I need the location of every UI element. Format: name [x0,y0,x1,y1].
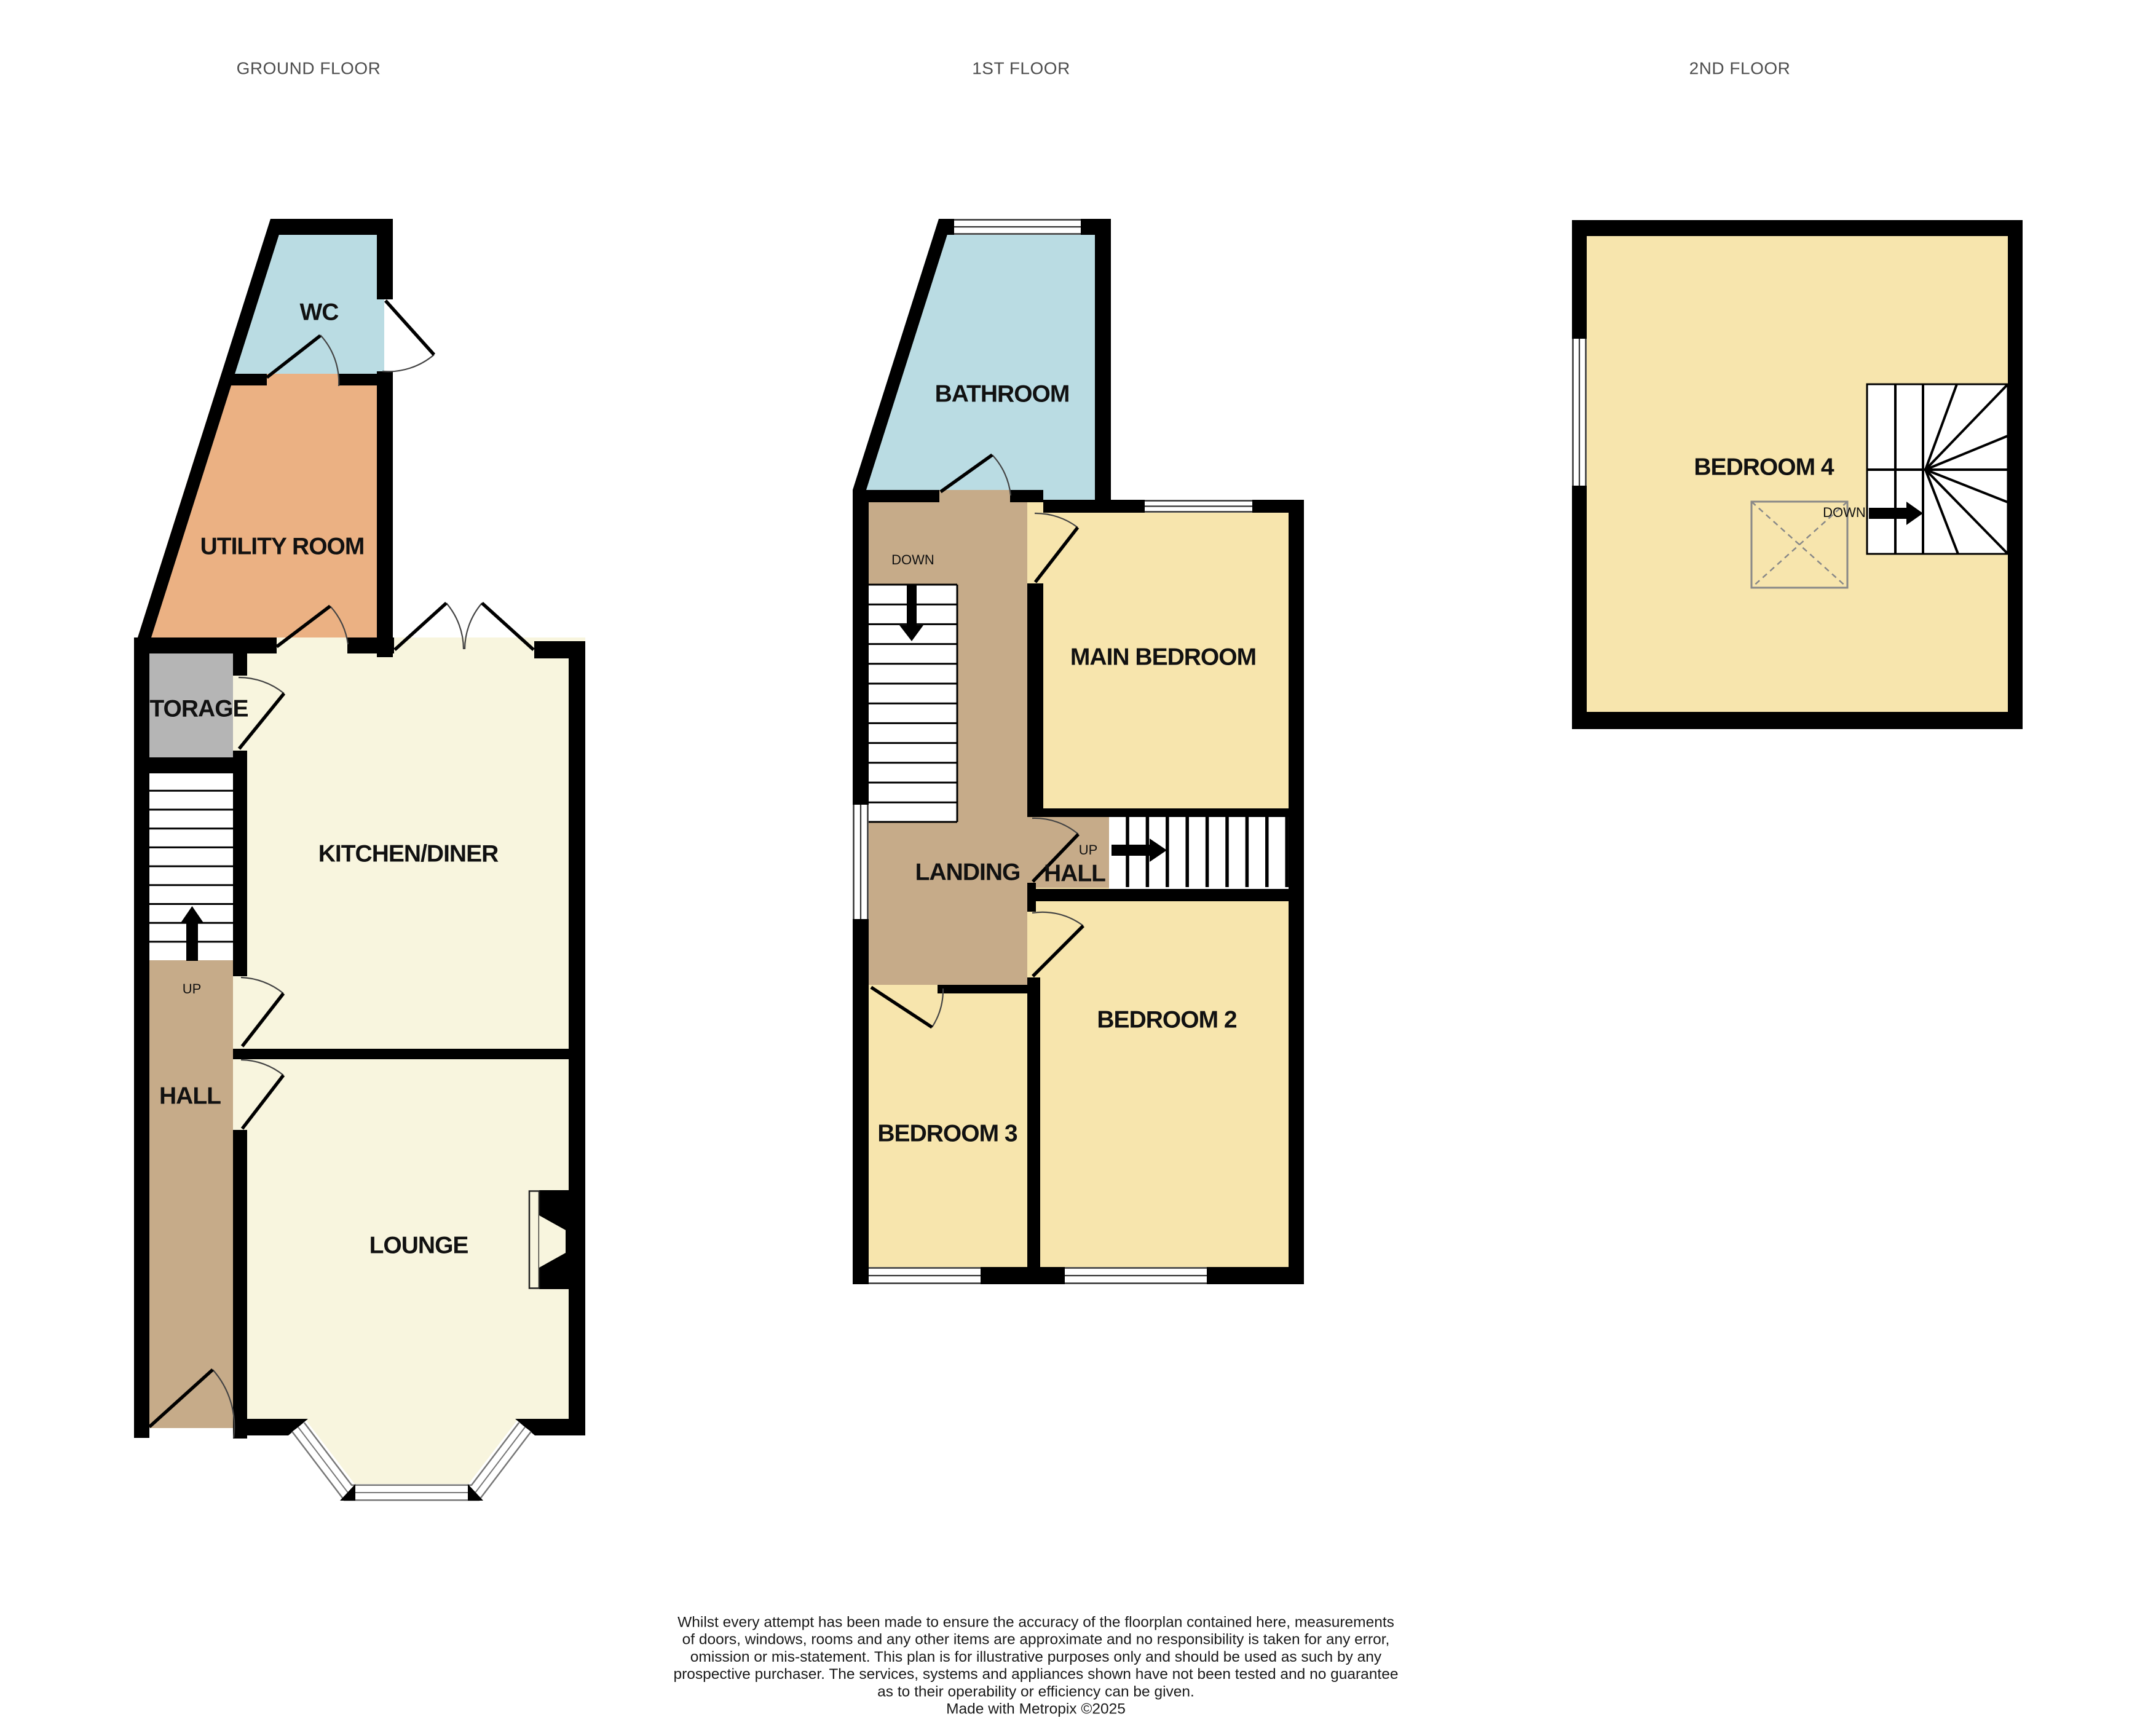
svg-text:1ST FLOOR: 1ST FLOOR [972,58,1070,77]
svg-text:omission or mis-statement. Thi: omission or mis-statement. This plan is … [690,1649,1382,1665]
svg-text:HALL: HALL [159,1083,221,1109]
svg-text:2ND FLOOR: 2ND FLOOR [1689,58,1791,77]
svg-text:WC: WC [300,299,339,325]
svg-text:MAIN BEDROOM: MAIN BEDROOM [1070,644,1256,670]
svg-text:BEDROOM 3: BEDROOM 3 [877,1120,1017,1147]
svg-text:BATHROOM: BATHROOM [935,381,1070,407]
svg-text:LANDING: LANDING [915,859,1021,885]
svg-text:BEDROOM 2: BEDROOM 2 [1097,1006,1237,1033]
svg-text:Whilst every attempt has been: Whilst every attempt has been made to en… [677,1614,1394,1630]
svg-text:UP: UP [1079,842,1098,858]
svg-text:as to their operability or eff: as to their operability or efficiency ca… [877,1683,1194,1700]
svg-text:of doors, windows, rooms and a: of doors, windows, rooms and any other i… [682,1632,1390,1648]
svg-text:LOUNGE: LOUNGE [369,1232,468,1258]
svg-text:DOWN: DOWN [1823,505,1866,520]
svg-text:UTILITY ROOM: UTILITY ROOM [200,533,365,559]
svg-text:Made with Metropix ©2025: Made with Metropix ©2025 [946,1700,1126,1717]
svg-text:KITCHEN/DINER: KITCHEN/DINER [318,840,499,867]
svg-text:prospective purchaser. The ser: prospective purchaser. The services, sys… [673,1666,1398,1683]
svg-text:UP: UP [183,981,202,997]
svg-text:GROUND FLOOR: GROUND FLOOR [237,58,381,77]
svg-text:HALL: HALL [1044,860,1105,886]
svg-text:STORAGE: STORAGE [134,695,248,722]
svg-text:BEDROOM 4: BEDROOM 4 [1694,454,1834,480]
svg-text:DOWN: DOWN [891,552,934,567]
